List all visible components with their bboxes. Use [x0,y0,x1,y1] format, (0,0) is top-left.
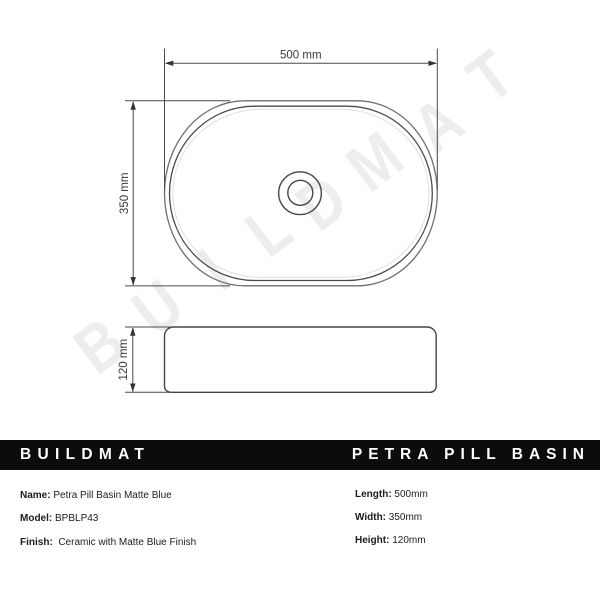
svg-text:350 mm: 350 mm [119,173,131,215]
svg-text:500 mm: 500 mm [280,50,322,62]
svg-text:120 mm: 120 mm [118,339,130,381]
